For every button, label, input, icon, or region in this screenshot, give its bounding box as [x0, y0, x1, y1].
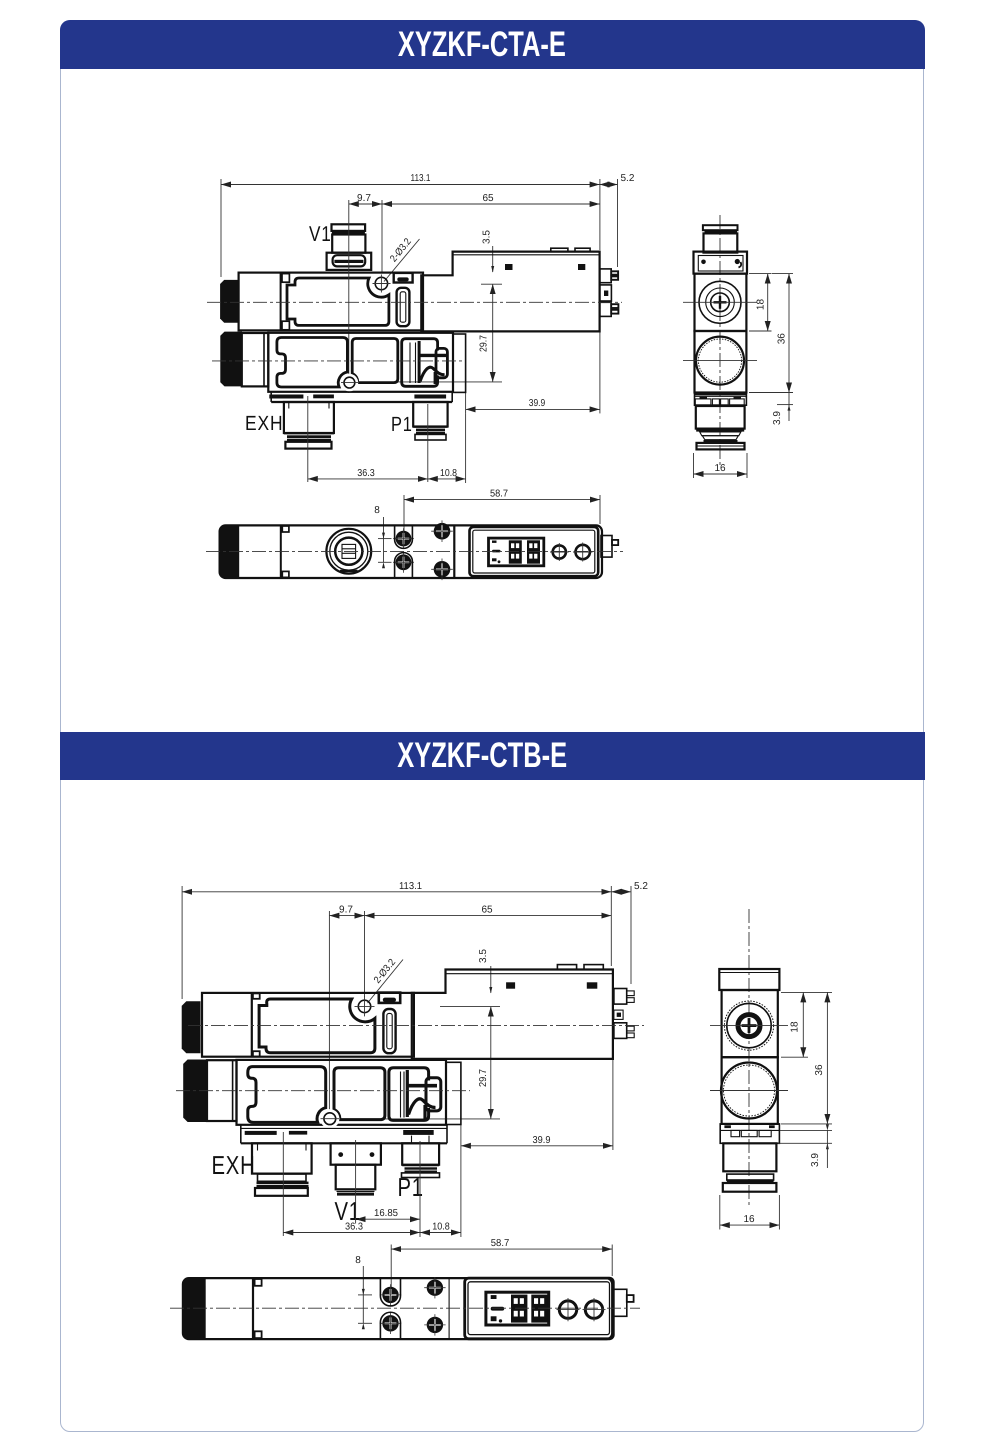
svg-text:65: 65 — [482, 193, 494, 204]
svg-text:36: 36 — [777, 333, 788, 345]
svg-text:10.8: 10.8 — [432, 1222, 450, 1233]
svg-text:9.7: 9.7 — [357, 193, 371, 204]
svg-text:58.7: 58.7 — [491, 1238, 510, 1249]
svg-text:8: 8 — [355, 1255, 361, 1266]
svg-text:16: 16 — [743, 1214, 755, 1225]
svg-text:58.7: 58.7 — [490, 489, 508, 500]
svg-text:16: 16 — [714, 463, 726, 474]
svg-text:V1: V1 — [309, 222, 332, 246]
svg-text:EXH: EXH — [212, 1150, 256, 1180]
svg-text:39.9: 39.9 — [529, 398, 546, 409]
svg-text:113.1: 113.1 — [411, 173, 431, 184]
svg-text:113.1: 113.1 — [399, 881, 422, 892]
svg-text:8: 8 — [374, 505, 380, 516]
svg-text:18: 18 — [790, 1021, 801, 1033]
svg-text:V1: V1 — [335, 1196, 361, 1226]
svg-text:3.5: 3.5 — [482, 230, 493, 244]
svg-text:16.85: 16.85 — [374, 1208, 398, 1219]
svg-text:P1: P1 — [391, 413, 413, 436]
svg-text:18: 18 — [756, 299, 767, 311]
svg-text:9.7: 9.7 — [339, 905, 353, 916]
svg-text:3.9: 3.9 — [772, 411, 783, 425]
svg-text:3.5: 3.5 — [478, 949, 489, 963]
svg-text:EXH: EXH — [245, 412, 283, 435]
svg-text:36: 36 — [814, 1064, 825, 1076]
svg-text:5.2: 5.2 — [634, 881, 648, 892]
svg-text:29.7: 29.7 — [478, 1069, 489, 1087]
svg-text:39.9: 39.9 — [533, 1135, 551, 1146]
svg-text:3.9: 3.9 — [810, 1153, 821, 1167]
svg-text:10.8: 10.8 — [440, 468, 457, 479]
svg-text:5.2: 5.2 — [621, 173, 635, 184]
svg-text:36.3: 36.3 — [357, 468, 375, 479]
svg-text:65: 65 — [481, 905, 493, 916]
svg-text:29.7: 29.7 — [479, 335, 490, 352]
